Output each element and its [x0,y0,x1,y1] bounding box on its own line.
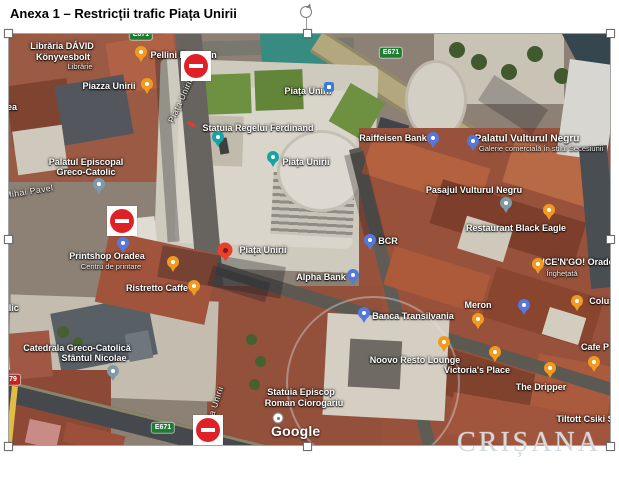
map-label: Librărie [67,63,92,71]
map-label: Greco-Catolic [56,168,115,178]
coffee-pin-icon [588,356,600,368]
document-page: Anexa 1 – Restricții trafic Piața Unirii [0,0,619,480]
map-label: Printshop Oradea [69,252,145,262]
map-label: Palatul Vulturul Negru [475,134,580,145]
no-entry-sign-icon [181,51,211,81]
map-label: ea [8,103,17,113]
restaurant-pin-icon [489,346,501,358]
route-badge-icon: E671 [130,33,152,40]
shopping-pin-icon [518,299,530,311]
map-label: Galerie comercială în stilul Secesiunii [479,145,603,153]
selection-handle-w[interactable] [4,235,13,244]
map-label: Librăria DÁVID [30,42,94,52]
map-label: Piața Unirii [282,158,329,168]
map-label: Piața Unirii [239,246,286,256]
map-label: Pasajul Vulturul Negru [426,186,522,196]
bank-pin-icon [427,132,439,144]
map-label: olic [8,304,19,314]
map-label: Colun [589,297,611,307]
selection-handle-s[interactable] [303,442,312,451]
map-label: Raiffeisen Bank [359,134,427,144]
map-label: Centru de printare [81,263,141,271]
route-badge-icon: E671 [380,48,402,58]
coffee-pin-icon [472,313,484,325]
map-label: BCR [378,237,398,247]
restaurant-pin-icon [141,78,153,90]
selection-handle-sw[interactable] [4,442,13,451]
church-pin-icon [93,178,105,190]
map-label: Alpha Bank [296,273,346,283]
restaurant-pin-icon [438,336,450,348]
map-image[interactable]: Librăria DÁVIDKönyvesboltLibrăriePellini… [8,33,611,446]
selection-handle-nw[interactable] [4,29,13,38]
bank-pin-icon [347,269,359,281]
map-label: Victoria's Place [444,366,510,376]
bar-pin-icon [571,295,583,307]
monument-pin-icon [212,131,224,143]
restaurant-pin-icon [543,204,555,216]
square-poi-pin-icon [267,151,279,163]
map-label: Ristretto Caffe [126,284,188,294]
poi-dot-icon [273,413,284,424]
map-label: ICE'N'GO! Orade [542,258,611,268]
church-pin-icon [107,365,119,377]
selection-handle-n[interactable] [303,29,312,38]
watermark: CRIȘANA [457,429,601,457]
selection-handle-se[interactable] [606,442,615,451]
selection-handle-ne[interactable] [606,29,615,38]
destination-marker-icon [218,243,233,258]
shopping-pin-icon [467,135,479,147]
map-label: Statuia Episcop [267,388,335,398]
map-label: Piazza Unirii [82,82,135,92]
bank-pin-icon [358,307,370,319]
map-label: Meron [465,301,492,311]
icecream-pin-icon [532,258,544,270]
map-label: Roman Ciorogariu [265,399,344,409]
coffee-pin-icon [167,256,179,268]
coffee-pin-icon [135,46,147,58]
map-label: Restaurant Black Eagle [466,224,566,234]
map-label: Cafe P [581,343,609,353]
bus-stop-icon-icon [324,82,334,92]
bank-pin-icon [364,234,376,246]
map-label: Tiltott Csiki S [556,415,611,425]
passage-pin-icon [500,197,512,209]
page-title[interactable]: Anexa 1 – Restricții trafic Piața Unirii [10,6,237,21]
map-label: Sfântul Nicolae [61,354,126,364]
coffee-pin-icon [188,280,200,292]
map-label: Înghețată [546,270,577,278]
map-label: n [211,51,217,61]
street-name-label: Mihai Pavel [8,184,54,201]
route-badge-icon: 79 [8,375,20,385]
google-logo: Google [271,423,320,439]
route-badge-icon: E671 [152,423,174,433]
map-label: The Dripper [516,383,567,393]
no-entry-sign-icon [107,206,137,236]
selection-handle-e[interactable] [606,235,615,244]
rotation-handle-icon[interactable] [300,6,312,18]
no-entry-sign-icon [193,415,223,445]
map-label: Banca Transilvania [372,312,454,322]
coffee-pin-icon [544,362,556,374]
printshop-pin-icon [117,237,129,249]
